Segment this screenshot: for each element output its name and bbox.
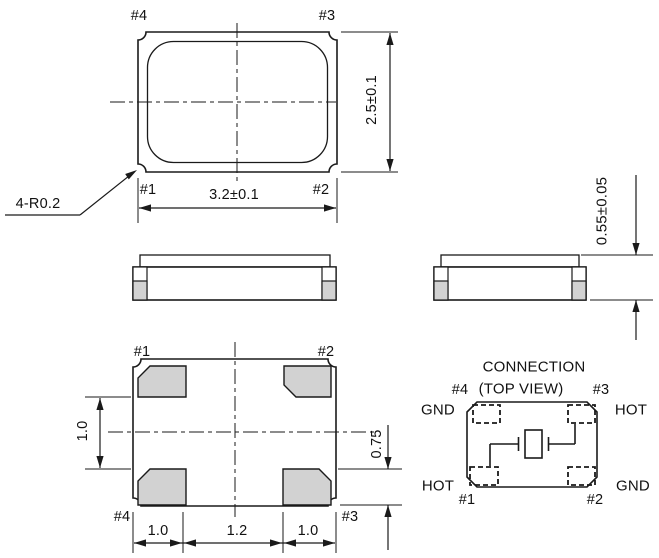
drawing-linework [0,0,659,558]
bottom-view-pad-gap-dim-label: 1.0 [75,421,91,442]
connection-pin3-signal-label: HOT [615,402,647,419]
top-view-pin1-label: #1 [140,182,157,198]
bottom-view-pin4-label: #4 [114,509,131,525]
crystal-symbol-body [525,430,542,458]
arrowhead [184,539,196,546]
bottom-view-pin1-label: #1 [134,344,151,360]
arrowhead [324,204,336,211]
arrowhead [384,457,391,469]
arrowhead [386,159,393,171]
arrowhead [139,204,151,211]
side-terminal-right-metal [572,281,586,300]
connection-pin1-signal-label: HOT [422,478,454,495]
connection-pin2-num-label: #2 [587,492,604,508]
connection-subtitle: (TOP VIEW) [479,381,564,398]
arrowhead [170,539,182,546]
arrowhead [284,539,296,546]
technical-drawing-page: #4 #3 #1 #2 2.5±0.1 3.2±0.1 4-R0.2 0.55±… [0,0,659,558]
arrowhead [96,398,103,410]
arrowhead [134,539,146,546]
front-side-view-drawing [133,255,336,300]
bottom-view-pad-height-dim-label: 0.75 [369,429,385,458]
corner-radius-note-label: 4-R0.2 [16,196,61,212]
top-view-drawing [5,23,398,223]
arrowhead [632,300,639,312]
connection-pin2-signal-label: GND [616,478,650,495]
arrowhead [386,33,393,45]
arrowhead [270,539,282,546]
arrowhead [323,539,335,546]
connection-pin3-num-label: #3 [593,382,610,398]
bottom-view-pin2-label: #2 [318,344,335,360]
pad-2 [284,366,331,397]
side-terminal-left-metal [434,281,448,300]
pad-1 [138,366,186,397]
top-view-width-dim-label: 3.2±0.1 [209,187,259,203]
side-body [434,267,586,300]
side-view-thickness-dim-label: 0.55±0.05 [594,177,611,245]
side-body [133,267,336,300]
pad-3 [283,469,331,505]
top-view-pin3-label: #3 [319,8,336,24]
arrowhead [384,505,391,517]
bottom-view-dim-left-label: 1.0 [148,523,169,539]
leader-line [80,172,134,215]
top-view-height-dim-label: 2.5±0.1 [364,75,380,125]
pad-4 [138,469,186,505]
bottom-view-pin3-label: #3 [342,509,359,525]
side-terminal-left-metal [133,281,147,300]
arrowhead [96,456,103,468]
arrowhead [632,243,639,255]
connection-pin4-num-label: #4 [452,382,469,398]
top-view-pin4-label: #4 [131,8,148,24]
side-lid [140,255,330,267]
bottom-view-dim-right-label: 1.0 [298,523,319,539]
top-view-pin2-label: #2 [313,182,330,198]
bottom-view-dim-center-label: 1.2 [227,523,248,539]
connection-pin4-signal-label: GND [421,402,455,419]
right-side-view-drawing [434,175,653,340]
connection-diagram [467,402,597,487]
side-terminal-right-metal [322,281,336,300]
side-lid [441,255,579,267]
connection-title: CONNECTION [483,359,586,376]
connection-pin1-num-label: #1 [459,492,476,508]
